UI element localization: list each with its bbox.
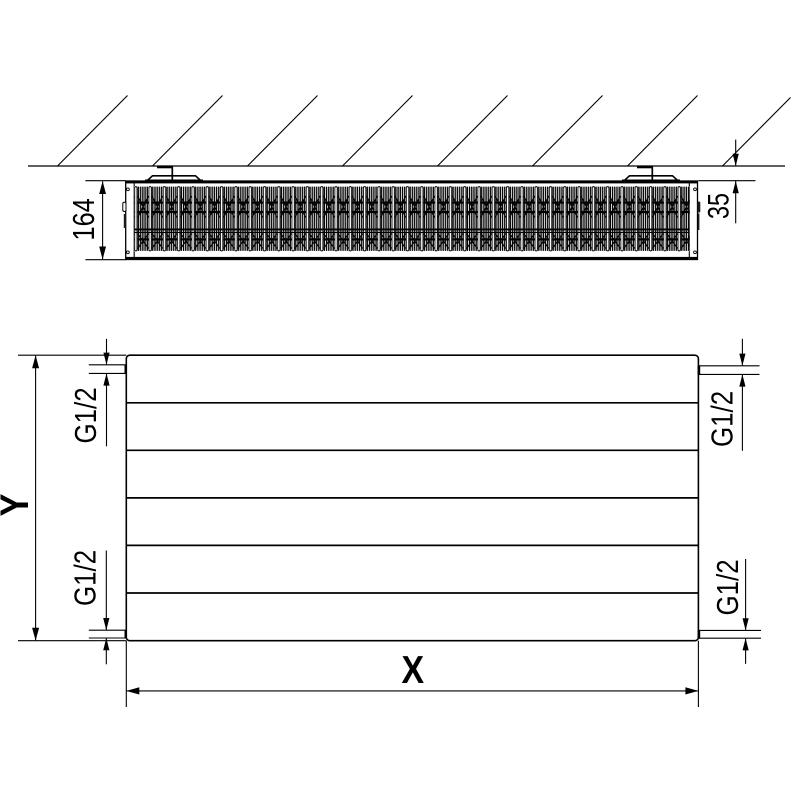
svg-text:G1/2: G1/2	[711, 559, 746, 615]
svg-text:G1/2: G1/2	[68, 550, 103, 606]
svg-text:35: 35	[702, 193, 735, 219]
svg-text:G1/2: G1/2	[69, 387, 104, 443]
svg-text:X: X	[402, 648, 425, 692]
svg-text:164: 164	[67, 198, 101, 240]
svg-text:Y: Y	[0, 493, 36, 516]
svg-text:G1/2: G1/2	[705, 391, 740, 447]
